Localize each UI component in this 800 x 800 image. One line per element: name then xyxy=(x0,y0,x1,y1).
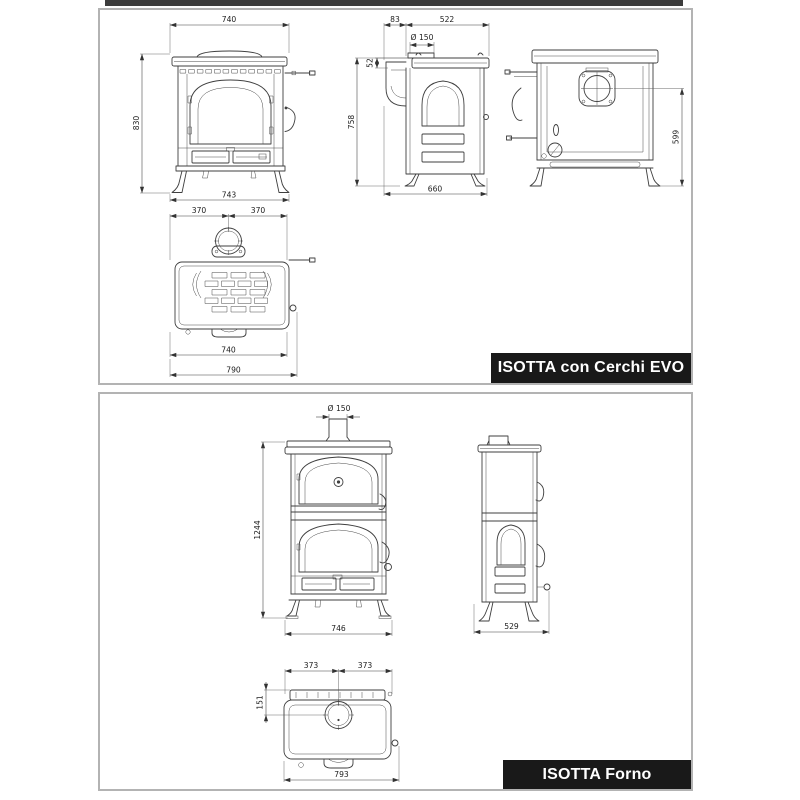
panel-title-isotta-forno: ISOTTA Forno xyxy=(503,760,691,789)
dim-front-width-top: 740 xyxy=(222,15,237,24)
forno-top-flue xyxy=(323,700,354,730)
panel-isotta-forno: Ø 150 xyxy=(98,392,693,791)
rear-flue-bend xyxy=(386,62,406,106)
top-handle-rod xyxy=(289,258,315,262)
panel-isotta-evo: 740 830 743 xyxy=(98,8,693,385)
forno-side-view: 529 xyxy=(474,436,550,634)
rear-handles xyxy=(505,70,562,158)
oven-door xyxy=(299,457,378,504)
evo-rear-view: 599 xyxy=(505,50,684,186)
evo-side-view: 83 522 Ø 150 52 758 660 xyxy=(347,15,489,196)
rear-flue-collar xyxy=(579,68,615,106)
dim-top-half-left: 370 xyxy=(192,206,207,215)
top-side-knob xyxy=(290,305,296,311)
dim-rear-flue-height: 599 xyxy=(672,130,681,145)
dim-front-height: 830 xyxy=(132,116,141,131)
page-top-bar xyxy=(105,0,683,6)
dim-side-back-offset: 83 xyxy=(390,15,400,24)
dim-top-plate-width: 740 xyxy=(221,346,236,355)
dim-side-depth-total: 660 xyxy=(428,185,443,194)
catalog-page: 740 830 743 xyxy=(0,0,800,800)
forno-door-handles xyxy=(297,474,392,571)
forno-front-view: Ø 150 xyxy=(253,404,392,636)
evo-top-view: 370 370 xyxy=(170,206,315,377)
forno-top-knob xyxy=(392,740,398,746)
forno-technical-drawing: Ø 150 xyxy=(100,394,691,789)
dim-forno-depth: 529 xyxy=(504,622,519,631)
dim-side-flue-diameter: Ø 150 xyxy=(411,33,434,42)
evo-front-view: 740 830 743 xyxy=(132,15,315,202)
dim-top-half-right: 370 xyxy=(251,206,266,215)
dim-forno-width: 746 xyxy=(331,624,346,633)
door-handle-hook xyxy=(285,107,295,132)
forno-top-view: 373 373 151 xyxy=(256,661,400,782)
dim-forno-top-half-left: 373 xyxy=(304,661,319,670)
dim-side-height: 758 xyxy=(347,115,356,130)
top-flue-collar xyxy=(212,227,245,257)
dim-side-flue-drop: 52 xyxy=(366,58,375,68)
dim-forno-top-width: 793 xyxy=(334,770,349,779)
firebox-door xyxy=(299,524,378,572)
dim-side-depth-body: 522 xyxy=(440,15,455,24)
side-handle-rod xyxy=(285,71,315,75)
dim-top-total-width: 790 xyxy=(226,366,241,375)
dim-forno-height: 1244 xyxy=(253,520,262,539)
evo-technical-drawing: 740 830 743 xyxy=(100,10,691,383)
dim-forno-flue-diameter: Ø 150 xyxy=(328,404,351,413)
flue-pipe xyxy=(324,419,352,441)
dim-forno-top-flue-offset: 151 xyxy=(256,695,265,710)
panel-title-isotta-evo: ISOTTA con Cerchi EVO xyxy=(491,353,691,383)
top-back-band xyxy=(290,690,385,700)
dim-forno-top-half-right: 373 xyxy=(358,661,373,670)
dim-front-width-bottom: 743 xyxy=(222,191,237,200)
side-window xyxy=(497,525,525,565)
